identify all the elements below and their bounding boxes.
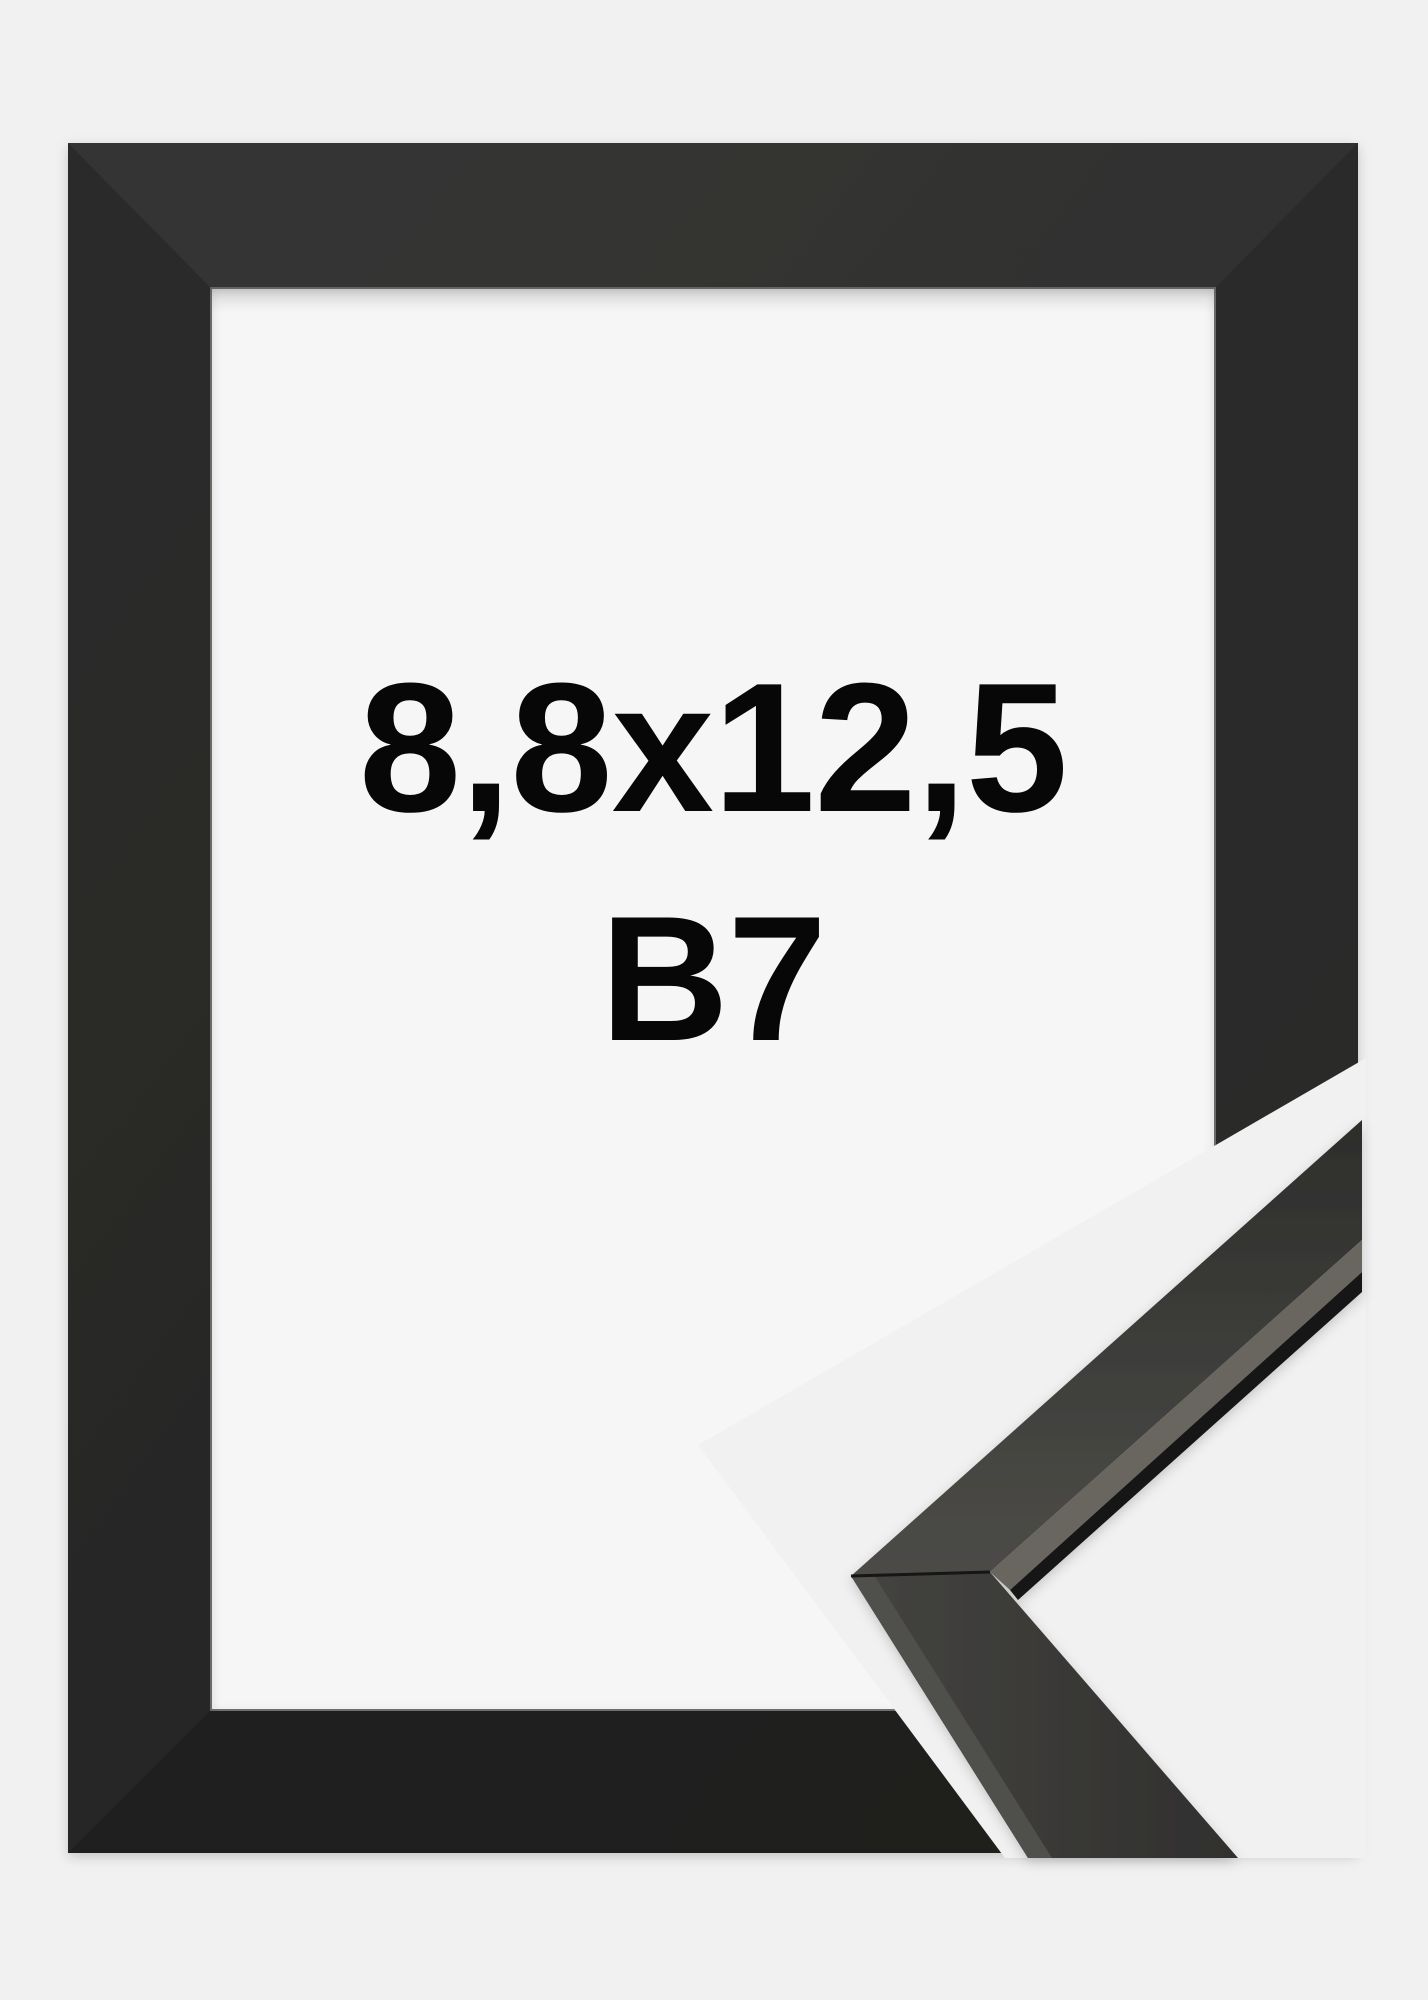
product-photo: 8,8x12,5 B7: [0, 0, 1428, 2000]
frame-window-top-shadow: [212, 289, 1214, 313]
frame-top-rail: [68, 143, 1358, 287]
format-label: B7: [210, 890, 1216, 1068]
size-label: 8,8x12,5: [210, 655, 1216, 839]
